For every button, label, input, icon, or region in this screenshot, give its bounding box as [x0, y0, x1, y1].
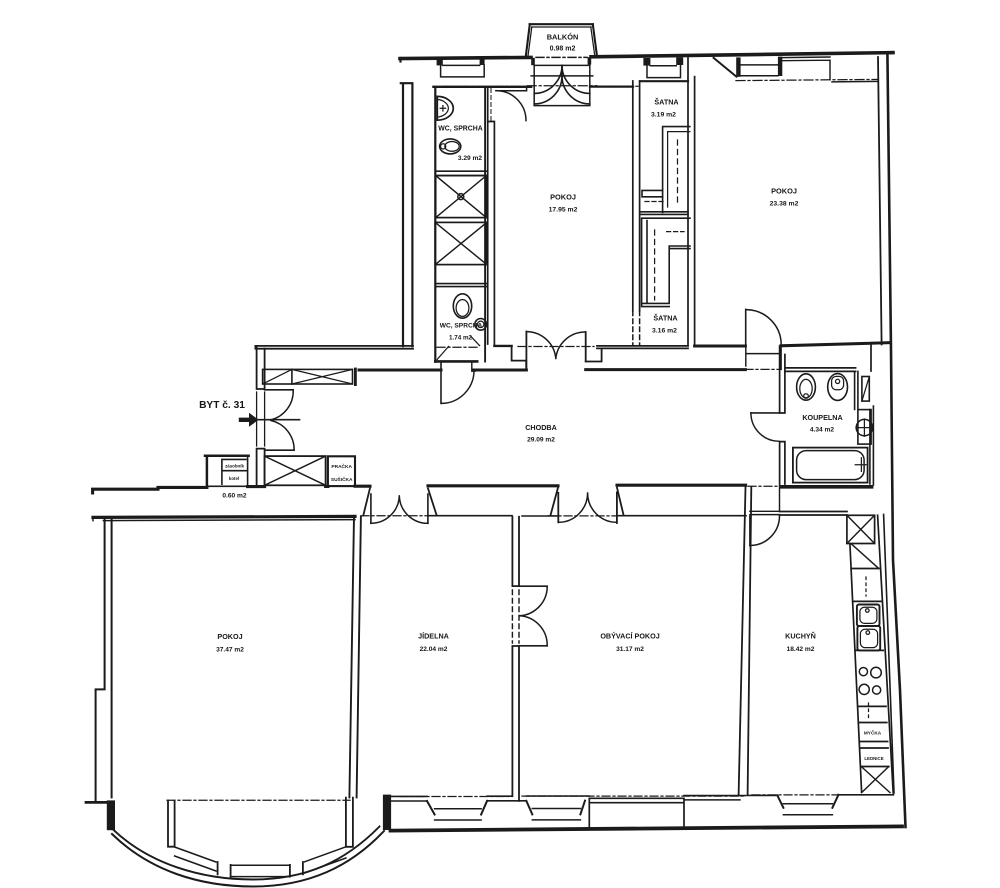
svg-text:POKOJ: POKOJ: [771, 187, 797, 196]
svg-text:1.74 m2: 1.74 m2: [449, 335, 473, 342]
svg-text:37.47 m2: 37.47 m2: [216, 647, 244, 654]
svg-text:CHODBA: CHODBA: [525, 423, 557, 432]
svg-text:3.16 m2: 3.16 m2: [652, 328, 677, 335]
svg-text:23.38 m2: 23.38 m2: [770, 201, 799, 208]
svg-text:0.98 m2: 0.98 m2: [550, 46, 576, 53]
svg-text:SUŠIČKA: SUŠIČKA: [331, 475, 353, 483]
svg-text:KOUPELNA: KOUPELNA: [802, 413, 842, 422]
svg-text:kotel: kotel: [229, 476, 239, 481]
svg-text:0.60 m2: 0.60 m2: [222, 493, 247, 500]
svg-text:31.17 m2: 31.17 m2: [616, 646, 644, 653]
svg-text:POKOJ: POKOJ: [217, 632, 242, 641]
svg-text:18.42 m2: 18.42 m2: [787, 646, 815, 653]
svg-text:KUCHYŇ: KUCHYŇ: [785, 632, 816, 641]
svg-text:zásobník: zásobník: [225, 464, 244, 469]
svg-text:MYČKA: MYČKA: [864, 730, 882, 736]
svg-text:JÍDELNA: JÍDELNA: [418, 632, 449, 641]
svg-text:29.09 m2: 29.09 m2: [527, 437, 555, 444]
svg-text:POKOJ: POKOJ: [550, 193, 576, 202]
svg-text:ŠATNA: ŠATNA: [653, 314, 677, 323]
svg-text:17.95 m2: 17.95 m2: [549, 207, 578, 214]
svg-text:WC, SPRCHA: WC, SPRCHA: [440, 323, 483, 330]
svg-text:WC, SPRCHA: WC, SPRCHA: [438, 126, 482, 133]
svg-text:OBÝVACÍ POKOJ: OBÝVACÍ POKOJ: [600, 632, 659, 641]
svg-text:3.19 m2: 3.19 m2: [651, 112, 676, 119]
svg-text:BYT č. 31: BYT č. 31: [199, 400, 245, 411]
svg-text:3.29 m2: 3.29 m2: [458, 155, 483, 162]
svg-text:PRAČKA: PRAČKA: [331, 463, 352, 470]
svg-text:ŠATNA: ŠATNA: [654, 98, 678, 107]
svg-text:22.04 m2: 22.04 m2: [420, 646, 448, 653]
svg-text:BALKÓN: BALKÓN: [547, 33, 579, 42]
svg-text:LEDNICE: LEDNICE: [864, 756, 883, 761]
svg-text:4.34 m2: 4.34 m2: [810, 427, 835, 434]
